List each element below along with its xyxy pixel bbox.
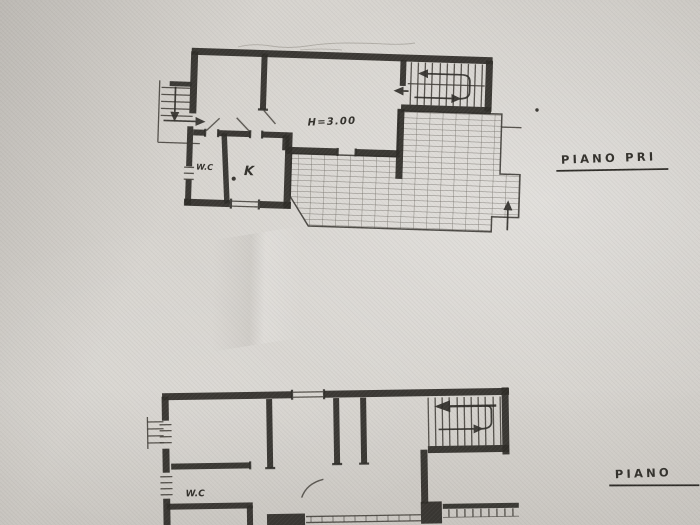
upper-plan-title-group: PIANO PRI [556, 149, 669, 173]
lower-plan-walls [162, 387, 519, 525]
floorplan-drawing: H=3.00 W.C K PIANO PRI [0, 0, 700, 525]
terrace-up-arrow [507, 202, 508, 230]
piano-label: PIANO [615, 465, 672, 481]
lower-plan-title-group: PIANO [609, 464, 700, 488]
upper-floor-plan: H=3.00 W.C K [155, 50, 530, 238]
piano-primo-label: PIANO PRI [561, 149, 657, 166]
piano-primo-underline [556, 167, 668, 173]
ink-speck [535, 108, 538, 111]
terrace-landing-line [501, 127, 521, 128]
door-dot-mark [232, 177, 236, 181]
wc-label-lower: W.C [186, 489, 206, 499]
lower-floor-plan: W.C [147, 386, 519, 525]
piano-underline [609, 482, 699, 488]
lower-exterior-stair [147, 417, 164, 449]
photographed-floorplan-sheet: H=3.00 W.C K PIANO PRI [0, 0, 700, 525]
wc-label-upper: W.C [196, 162, 213, 172]
ceiling-height-label: H=3.00 [307, 116, 356, 129]
kitchen-label: K [244, 164, 255, 179]
faint-pencil-marks [238, 43, 415, 50]
upper-plan-staircase [395, 62, 485, 108]
lower-plan-staircase [428, 396, 501, 446]
